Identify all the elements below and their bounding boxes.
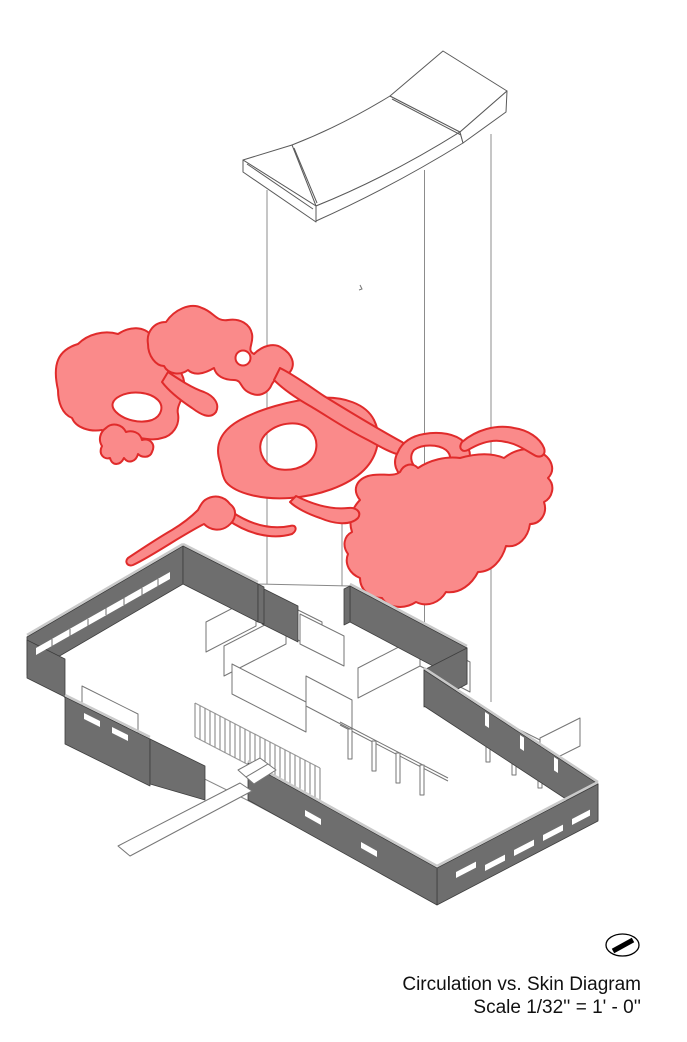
circulation-connector	[290, 496, 359, 523]
roof	[243, 51, 507, 222]
wall-end-face	[258, 584, 264, 624]
circulation-noodle	[460, 427, 544, 457]
column	[420, 765, 424, 795]
circulation-zones	[56, 306, 553, 607]
column	[348, 729, 352, 759]
north-arrow-icon	[606, 934, 639, 956]
exploded-axon-diagram: Circulation vs. Skin Diagram Scale 1/32'…	[0, 0, 687, 1042]
diagram-page: Circulation vs. Skin Diagram Scale 1/32'…	[0, 0, 687, 1042]
circulation-central-ring	[218, 398, 378, 499]
caption-title: Circulation vs. Skin Diagram	[402, 974, 641, 995]
window-slot	[485, 712, 489, 728]
circulation-bottom-lobe	[345, 449, 553, 607]
circulation-arc	[228, 512, 296, 536]
wall-end-face	[344, 586, 350, 625]
building-model	[27, 544, 598, 905]
column	[396, 753, 400, 783]
window-slot	[520, 735, 524, 751]
caption-scale: Scale 1/32'' = 1' - 0''	[473, 997, 641, 1018]
stray-mark	[359, 285, 362, 290]
window-slot	[554, 757, 558, 773]
column	[372, 741, 376, 771]
circulation-hole	[236, 351, 251, 366]
